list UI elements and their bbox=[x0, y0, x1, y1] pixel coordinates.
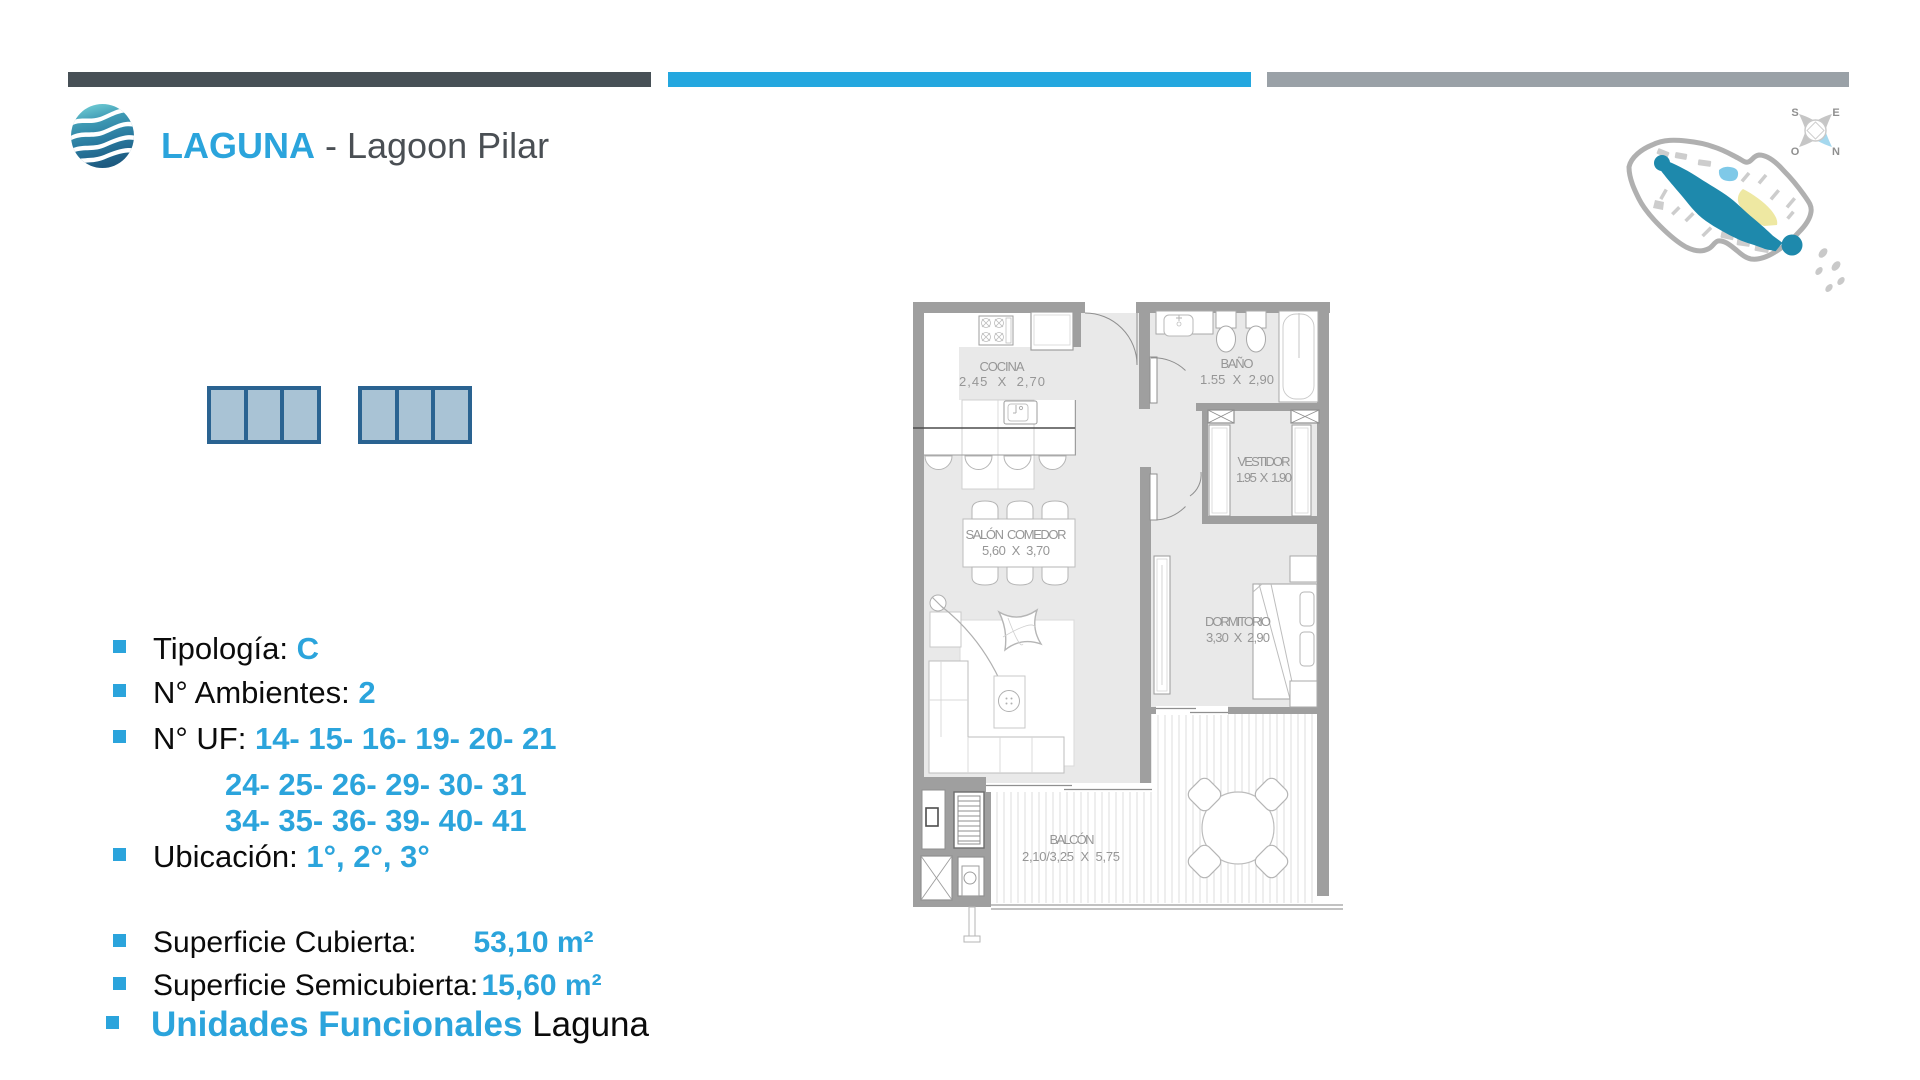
svg-text:S: S bbox=[1791, 107, 1798, 119]
svg-text:BAÑO: BAÑO bbox=[1221, 356, 1254, 371]
svg-text:2,10/3,25 X 5,75: 2,10/3,25 X 5,75 bbox=[1022, 849, 1120, 864]
svg-text:SALÓN COMEDOR: SALÓN COMEDOR bbox=[966, 527, 1067, 542]
svg-text:1.95 X 1.90: 1.95 X 1.90 bbox=[1236, 470, 1292, 485]
svg-text:2,45 X 2,70: 2,45 X 2,70 bbox=[959, 374, 1045, 389]
svg-text:VESTIDOR: VESTIDOR bbox=[1238, 454, 1291, 469]
svg-text:COCINA: COCINA bbox=[980, 359, 1025, 374]
svg-text:5,60 X 3,70: 5,60 X 3,70 bbox=[982, 543, 1050, 558]
svg-text:3,30 X 2,90: 3,30 X 2,90 bbox=[1206, 630, 1270, 645]
svg-text:N: N bbox=[1832, 146, 1840, 158]
svg-text:BALCÓN: BALCÓN bbox=[1050, 832, 1095, 847]
svg-text:1.55 X 2,90: 1.55 X 2,90 bbox=[1200, 372, 1274, 387]
svg-text:DORMITORIO: DORMITORIO bbox=[1205, 614, 1271, 629]
svg-text:E: E bbox=[1832, 107, 1839, 119]
svg-text:O: O bbox=[1791, 146, 1800, 158]
